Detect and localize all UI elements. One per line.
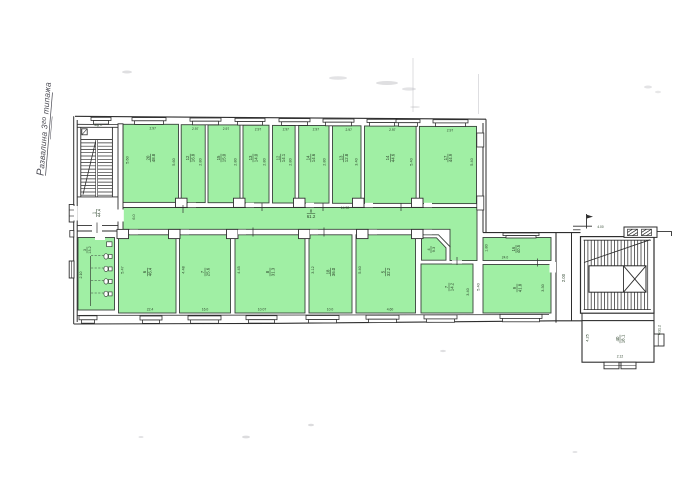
svg-text:2.97: 2.97: [389, 128, 396, 132]
svg-text:14: 14: [385, 155, 390, 160]
svg-text:5.40: 5.40: [470, 158, 474, 165]
svg-text:5.40: 5.40: [477, 283, 481, 290]
svg-text:2.00: 2.00: [561, 273, 566, 282]
svg-text:2.97: 2.97: [255, 127, 262, 131]
svg-text:17: 17: [443, 155, 448, 160]
svg-text:16.0: 16.0: [202, 308, 209, 312]
svg-text:15: 15: [216, 155, 221, 160]
svg-text:2.97: 2.97: [283, 128, 290, 132]
svg-text:14.1: 14.1: [281, 153, 286, 162]
svg-text:31.3: 31.3: [270, 267, 275, 276]
svg-text:10.07: 10.07: [258, 308, 267, 312]
svg-text:2.10: 2.10: [79, 272, 83, 279]
svg-text:44.9: 44.9: [448, 153, 453, 162]
svg-text:13: 13: [339, 155, 344, 160]
svg-text:2.97: 2.97: [313, 128, 320, 132]
svg-text:3.12: 3.12: [311, 266, 315, 273]
svg-text:15.0: 15.0: [221, 153, 226, 162]
svg-text:16: 16: [511, 246, 516, 251]
svg-text:6.0: 6.0: [132, 214, 136, 219]
svg-text:5.60: 5.60: [172, 158, 176, 165]
svg-text:10.0: 10.0: [327, 308, 334, 312]
svg-text:14.0: 14.0: [253, 153, 258, 162]
svg-text:4.45: 4.45: [237, 266, 241, 273]
svg-text:6/31.2: 6/31.2: [658, 325, 662, 335]
svg-text:5.47: 5.47: [121, 266, 125, 273]
svg-text:32.2: 32.2: [386, 267, 391, 276]
svg-text:20: 20: [146, 155, 151, 160]
svg-text:2.80: 2.80: [233, 158, 237, 165]
svg-text:4.00: 4.00: [597, 225, 603, 229]
svg-text:22.4: 22.4: [147, 308, 154, 312]
svg-text:2.97: 2.97: [346, 128, 353, 132]
svg-text:18.1: 18.1: [620, 334, 625, 343]
svg-text:9.3: 9.3: [431, 246, 436, 252]
svg-text:2.80: 2.80: [262, 158, 266, 165]
svg-text:3.40: 3.40: [466, 288, 470, 295]
svg-text:24.0: 24.0: [502, 256, 509, 260]
svg-text:4.60: 4.60: [387, 308, 394, 312]
svg-text:25.6: 25.6: [205, 267, 210, 276]
svg-text:14.6: 14.6: [311, 153, 316, 162]
svg-text:18: 18: [325, 269, 330, 274]
svg-text:2.80: 2.80: [199, 158, 203, 165]
svg-text:3: 3: [83, 249, 87, 251]
svg-text:46.4: 46.4: [148, 267, 153, 276]
svg-text:2.97: 2.97: [192, 127, 199, 131]
svg-text:44.4: 44.4: [97, 208, 102, 217]
svg-text:5.40: 5.40: [410, 158, 414, 165]
svg-text:36.0: 36.0: [331, 267, 336, 276]
svg-text:4.25: 4.25: [586, 334, 590, 341]
svg-text:1.80: 1.80: [485, 244, 489, 251]
svg-text:48.8: 48.8: [151, 153, 156, 162]
svg-text:5.40: 5.40: [358, 266, 362, 273]
svg-text:61.2: 61.2: [307, 214, 316, 219]
svg-text:5.60: 5.60: [126, 156, 130, 163]
svg-text:2.12: 2.12: [617, 355, 624, 359]
svg-text:12: 12: [185, 155, 190, 160]
svg-text:44.6: 44.6: [391, 153, 396, 162]
svg-text:2.80: 2.80: [322, 158, 326, 165]
svg-text:14.92: 14.92: [341, 206, 350, 210]
svg-text:40.5: 40.5: [516, 244, 521, 253]
svg-text:40: 40: [615, 336, 620, 341]
svg-text:4.48: 4.48: [182, 266, 186, 273]
svg-text:3.30: 3.30: [541, 284, 545, 291]
svg-text:2.97: 2.97: [150, 127, 157, 131]
svg-text:16.8: 16.8: [191, 153, 196, 162]
svg-text:2.80: 2.80: [289, 158, 293, 165]
svg-text:12.8: 12.8: [344, 153, 349, 162]
svg-text:2.97: 2.97: [223, 127, 230, 131]
svg-text:41.8: 41.8: [517, 283, 522, 292]
svg-text:13.2: 13.2: [88, 246, 92, 253]
svg-text:3.40: 3.40: [354, 158, 358, 165]
svg-text:14: 14: [306, 155, 311, 160]
svg-text:12: 12: [276, 155, 281, 160]
svg-text:14.2: 14.2: [449, 282, 454, 291]
svg-text:2.97: 2.97: [447, 129, 454, 133]
svg-text:13: 13: [248, 155, 253, 160]
